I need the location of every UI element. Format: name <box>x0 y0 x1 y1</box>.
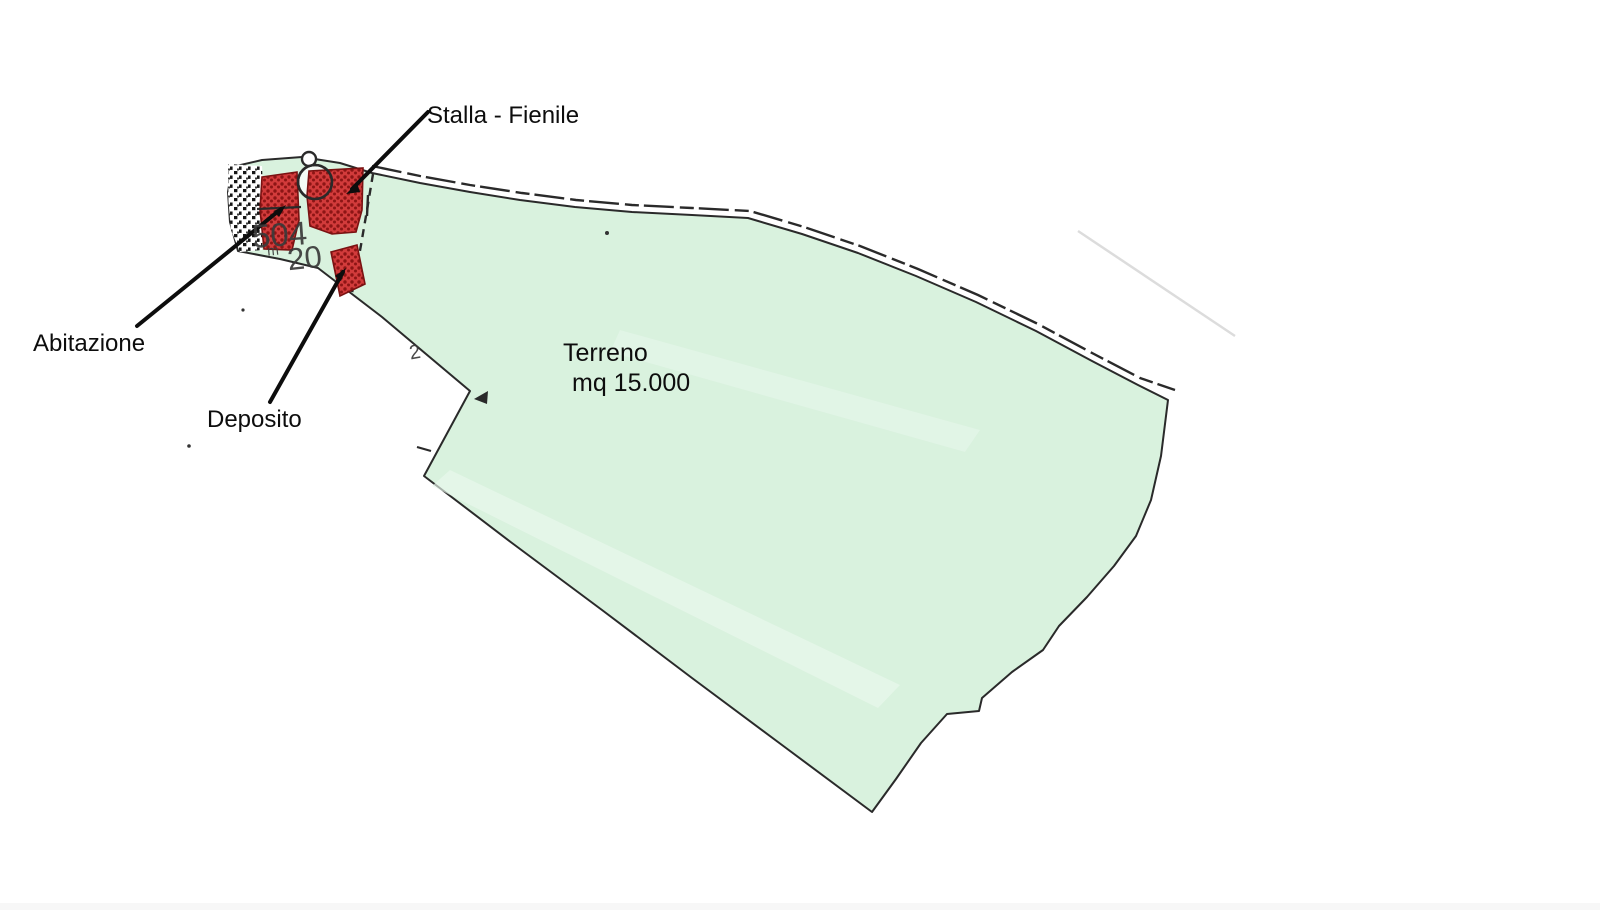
map-speck <box>187 444 191 448</box>
boundary-tick-mark <box>367 195 368 216</box>
parcel-number-20: 20 <box>286 239 324 277</box>
cadastral-map-svg: 504 m 20 2 Stalla - Fienile Abitazione D… <box>0 0 1600 910</box>
scan-artifact-strip <box>0 903 1600 910</box>
parcel-number-m: m <box>266 242 279 259</box>
building-stalla-fienile <box>307 168 363 234</box>
label-abitazione: Abitazione <box>33 330 145 357</box>
label-terreno-area: mq 15.000 <box>572 369 690 397</box>
label-terreno: Terreno <box>563 339 648 367</box>
road-faint-continuation <box>1078 231 1235 336</box>
terreno-parcel-outline <box>228 157 1168 812</box>
label-stalla-fienile: Stalla - Fienile <box>427 102 579 129</box>
map-speck <box>241 308 244 311</box>
leader-line-deposito <box>270 272 343 402</box>
cadastral-map-page: 504 m 20 2 Stalla - Fienile Abitazione D… <box>0 0 1600 910</box>
map-speck <box>605 231 609 235</box>
west-edge-tick <box>417 447 431 451</box>
label-deposito: Deposito <box>207 406 302 433</box>
